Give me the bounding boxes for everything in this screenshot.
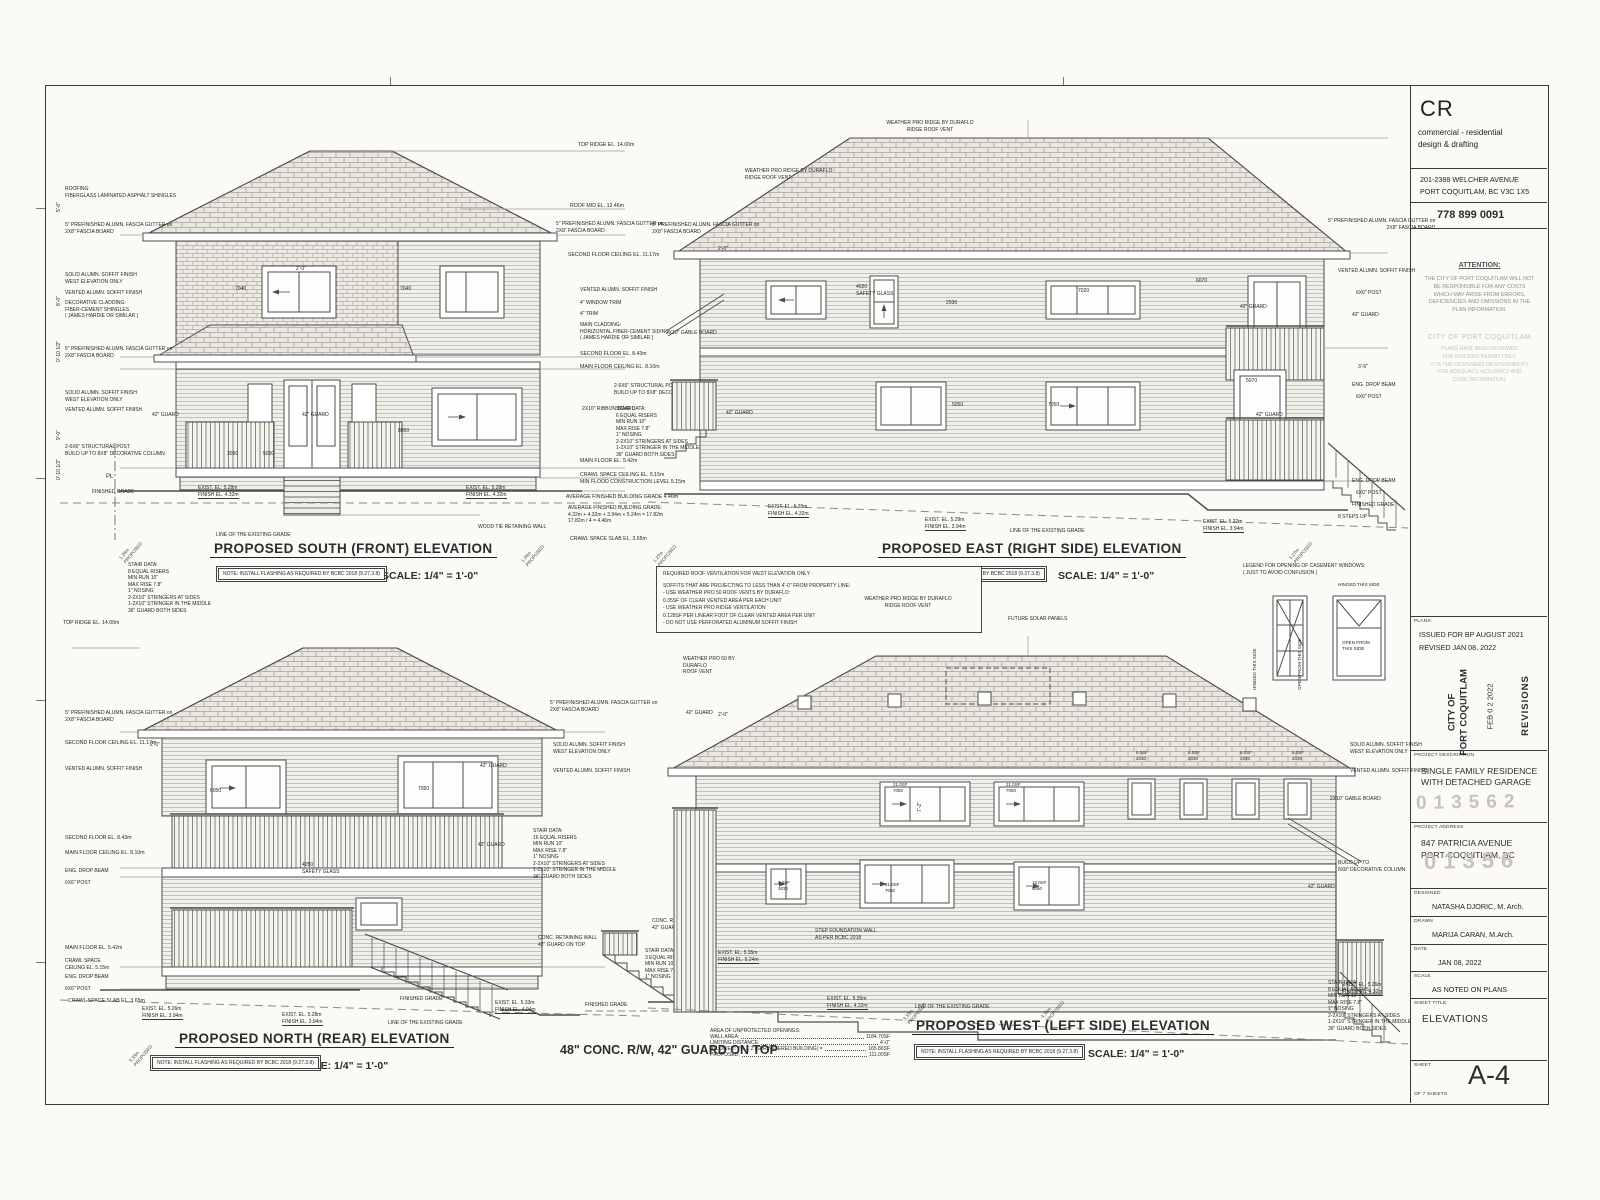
south-second-floor-level: SECOND FLOOR EL. 8.43m <box>580 351 647 358</box>
east-gable-board-note: 2X10" GABLE BOARD <box>666 330 717 337</box>
east-steps-up-label: 8 STEPS UP <box>1338 514 1367 521</box>
east-post-label-3: 6X6" POST <box>1356 490 1382 497</box>
west-flashing-note: NOTE: INSTALL FLASHING AS REQUIRED BY BC… <box>916 1046 1083 1058</box>
south-existing-grade-line-label: LINE OF THE EXISTING GRADE <box>216 532 291 539</box>
east-guard-lower-balcony: 42" GUARD <box>1256 412 1283 419</box>
north-grade-2: EXIST. EL. 5.28m FINISH EL. 3.94m <box>282 1012 323 1026</box>
north-vented-soffit-note: VENTED ALUMN. SOFFIT FINISH <box>65 766 142 773</box>
south-decor-cladding-note: DECORATIVE CLADDING: FIBER-CEMENT SHINGL… <box>65 300 138 320</box>
north-solid-soffit-right: SOLID ALUMN. SOFFIT FINISH WEST ELEVATIO… <box>553 742 625 755</box>
firm-logo: CR <box>1420 96 1454 122</box>
north-grade-1: EXIST. EL. 5.26m FINISH EL. 3.94m <box>142 1006 183 1020</box>
firm-address-1: 201-2388 WELCHER AVENUE <box>1420 175 1519 184</box>
titleblock-divider <box>1410 85 1411 1103</box>
firm-subtitle-1: commercial - residential <box>1418 128 1502 137</box>
north-fascia-note: 5" PREFINISHED ALUMN. FASCIA GUTTER on 2… <box>65 710 172 723</box>
north-window-7050-label: 7050 <box>418 786 429 793</box>
north-top-ridge-level: TOP RIDGE EL. 14.00m <box>63 620 119 627</box>
east-post-label: 6X6" POST <box>1356 290 1382 297</box>
sheet-number-value: A-4 <box>1468 1060 1510 1091</box>
east-elevation-title: PROPOSED EAST (RIGHT SIDE) ELEVATION <box>878 541 1186 558</box>
west-ridge-vent-note: WEATHER PRO RIDGE BY DURAFLO RIDGE ROOF … <box>864 596 951 609</box>
designed-label: DESIGNED <box>1414 891 1441 896</box>
north-post-label-2: 6X6" POST <box>65 986 91 993</box>
west-openings-row-value: 111.00SF <box>869 1052 890 1058</box>
east-existing-grade-line-label: LINE OF THE EXISTING GRADE <box>1010 528 1085 535</box>
east-drop-beam-label-2: ENG. DROP BEAM <box>1352 478 1396 485</box>
north-guard-upper: 42" GUARD <box>480 763 507 770</box>
north-elevation-drawing <box>60 612 640 1042</box>
east-dim-3-6: 3'-6" <box>1358 364 1368 371</box>
south-flashing-note: NOTE: INSTALL FLASHING AS REQUIRED BY BC… <box>218 568 385 580</box>
south-crawl-slab-level: CRAWL SPACE SLAB EL. 3.65m <box>570 536 647 543</box>
east-finished-grade-label: FINISHED GRADE <box>1352 502 1395 509</box>
south-dim-9-0: 9'-0" <box>56 430 63 440</box>
edge-tick <box>36 962 45 963</box>
edge-tick <box>1063 77 1064 85</box>
south-fascia-note: 5" PREFINISHED ALUMN. FASCIA GUTTER on 2… <box>65 222 172 235</box>
north-elevation-title: PROPOSED NORTH (REAR) ELEVATION <box>175 1031 454 1048</box>
south-stair-data: STAIR DATA: 8 EQUAL RISERS MIN RUN 10" M… <box>128 562 211 614</box>
scale-label: SCALE <box>1414 974 1431 979</box>
firm-phone: 778 899 0091 <box>1437 209 1504 221</box>
drawing-sheet: ROOFING: FIBERGLASS LAMINATED ASPHALT SH… <box>0 0 1600 1200</box>
project-address-1: 847 PATRICIA AVENUE <box>1421 838 1512 848</box>
south-post-note: 2-6X6" STRUCTURAL POST BUILD UP TO 8X8" … <box>65 444 165 457</box>
south-scale-label: SCALE: 1/4" = 1'-0" <box>382 570 478 582</box>
north-drop-beam-label: ENG. DROP BEAM <box>65 868 109 875</box>
edge-tick <box>36 700 45 701</box>
south-roofing-note: ROOFING: FIBERGLASS LAMINATED ASPHALT SH… <box>65 186 176 199</box>
west-guard-tower: 42" GUARD <box>686 710 713 717</box>
sheet-number-label: SHEET <box>1414 1063 1431 1068</box>
north-grade-3: EXIST. EL. 5.33m FINISH EL. 4.04m <box>495 1000 536 1014</box>
west-grade-1: EXIST. EL. 5.35m FINISH EL. 5.24m <box>718 950 759 964</box>
west-build8x8-note: BUILD UP TO 8X8" DECORATIVE COLUMN <box>1338 860 1405 873</box>
revision-stamp-revisions: REVISIONS <box>1520 658 1531 753</box>
south-guard-label-2: 42" GUARD <box>302 412 329 419</box>
south-window-trim-note: 4" WINDOW TRIM <box>580 300 621 307</box>
west-window-2030-label-2: 6.0SF 2030 <box>1188 750 1200 762</box>
south-elevation-drawing <box>60 118 640 548</box>
east-drop-beam-label: ENG. DROP BEAM <box>1352 382 1396 389</box>
west-openings-table: AREA OF UNPROTECTED OPENINGS: WALL AREA:… <box>710 1028 890 1058</box>
south-dim-2-0: 2'-0" <box>296 266 306 273</box>
south-vented-soffit-note: VENTED ALUMN. SOFFIT FINISH <box>65 290 142 297</box>
legend-hinged2-label: HINGED THIS SIDE <box>1338 582 1380 588</box>
firm-subtitle-2: design & drafting <box>1418 140 1478 149</box>
north-flashing-note: NOTE: INSTALL FLASHING AS REQUIRED BY BC… <box>152 1057 319 1069</box>
east-grade-b: EXIST. EL. 5.29m FINISH EL. 3.94m <box>925 517 966 531</box>
north-fascia-note-right: 5" PREFINISHED ALUMN. FASCIA GUTTER on 2… <box>550 700 657 713</box>
west-window-7050b-label: 21.0SF 7050 <box>1006 782 1021 794</box>
south-window-5030-label: 5030 <box>263 451 274 458</box>
west-gable-board-note: 2X10" GABLE BOARD <box>1330 796 1381 803</box>
east-fascia-note-right: 5" PREFINISHED ALUMN. FASCIA GUTTER on 2… <box>1328 218 1435 231</box>
sheet-title-value: ELEVATIONS <box>1422 1014 1488 1025</box>
date-label: DATE <box>1414 947 1427 952</box>
east-ridge-vent-note-2: WEATHER PRO RIDGE BY DURAFLO RIDGE ROOF … <box>745 168 832 181</box>
west-elevation-title: PROPOSED WEST (LEFT SIDE) ELEVATION <box>912 1018 1214 1035</box>
south-window-7040b-label: 7040 <box>400 286 411 293</box>
north-vented-soffit-right: VENTED ALUMN. SOFFIT FINISH <box>553 768 630 775</box>
south-grade-right: EXIST. EL. 5.28m FINISH EL. 4.32m <box>466 485 507 499</box>
south-vented-soffit-note-2: VENTED ALUMN. SOFFIT FINISH <box>65 407 142 414</box>
plans-label: PLANS: <box>1414 619 1432 624</box>
edge-tick <box>36 478 45 479</box>
east-window-6070-label: 6070 <box>1196 278 1207 285</box>
south-top-ridge-level: TOP RIDGE EL. 14.00m <box>578 142 634 149</box>
south-solid-soffit-note: SOLID ALUMN. SOFFIT FINISH WEST ELEVATIO… <box>65 272 137 285</box>
south-window-7040-label: 7040 <box>235 286 246 293</box>
east-vented-soffit-right: VENTED ALUMN. SOFFIT FINISH <box>1338 268 1415 275</box>
west-window-2030-label-1: 6.0SF 2030 <box>1136 750 1148 762</box>
east-window-4020-label: 4020 SAFETY GLASS <box>856 284 893 297</box>
designed-value: NATASHA DJORIC, M. Arch. <box>1432 902 1524 911</box>
project-address-label: PROJECT ADDRESS <box>1414 825 1464 830</box>
south-grade-left: EXIST. EL. 5.28m FINISH EL. 4.32m <box>198 485 239 499</box>
south-vented-soffit-note-3: VENTED ALUMN. SOFFIT FINISH <box>580 287 657 294</box>
east-fascia-note-left: 5" PREFINISHED ALUMN. FASCIA GUTTER on 2… <box>652 222 759 235</box>
west-window-5050-label: 15.0SF 5050 <box>1032 880 1047 892</box>
plans-revised: REVISED JAN 08, 2022 <box>1419 643 1496 652</box>
north-main-ceiling-level: MAIN FLOOR CEILING EL. 8.10m <box>65 850 145 857</box>
east-window-7020-label: 7020 <box>1078 288 1089 295</box>
west-dim-2-0: 2'-0" <box>718 712 728 719</box>
edge-tick <box>36 208 45 209</box>
south-wood-tie-label: WOOD TIE RETAINING WALL <box>478 524 546 531</box>
north-main-floor-level: MAIN FLOOR EL. 5.42m <box>65 945 122 952</box>
drawn-value: MARIJA CARAN, M.Arch. <box>1432 930 1514 939</box>
south-finished-grade-label: FINISHED GRADE <box>92 489 135 496</box>
east-scale-label: SCALE: 1/4" = 1'-0" <box>1058 570 1154 582</box>
east-elevation-drawing <box>648 98 1408 553</box>
west-window-3030-label: 9.0SF 3030 <box>778 880 790 892</box>
south-fascia-note-2: 5" PREFINISHED ALUMN. FASCIA GUTTER on 2… <box>65 346 172 359</box>
west-solid-soffit-right: SOLID ALUMN. SOFFIT FINISH WEST ELEVATIO… <box>1350 742 1422 755</box>
west-window-2030-label-3: 6.0SF 2030 <box>1240 750 1252 762</box>
west-step-foundation-note: STEP FOUNDATION WALL AS PER BCBC 2018 <box>815 928 877 941</box>
south-solid-soffit-note-2: SOLID ALUMN. SOFFIT FINISH WEST ELEVATIO… <box>65 390 137 403</box>
drawn-label: DRAWN <box>1414 919 1433 924</box>
attention-heading: ATTENTION: <box>1412 262 1547 269</box>
east-grade-a: EXIST. EL. 5.39m FINISH EL. 4.32m <box>768 504 809 518</box>
west-openings-row-label: PROPOSED: <box>710 1052 740 1058</box>
revision-stamp-date: FEB 0 2 2022 <box>1486 662 1495 752</box>
plans-issued: ISSUED FOR BP AUGUST 2021 <box>1419 630 1524 639</box>
south-dim-8-0: 8'-0" <box>56 296 63 306</box>
west-scale-label: SCALE: 1/4" = 1'-0" <box>1088 1048 1184 1060</box>
roof-ventilation-note-head: REQUIRED ROOF VENTILATION FOR WEST ELEVA… <box>663 571 975 579</box>
north-crawl-ceiling-level: CRAWL SPACE CEILING EL. 5.15m <box>65 958 109 971</box>
south-main-floor-level: MAIN FLOOR EL. 5.42m <box>580 458 637 465</box>
south-dim-10half: 0'-10 1/2" <box>56 341 63 362</box>
north-finished-grade-label: FINISHED GRADE <box>400 996 443 1003</box>
east-dim-2-0: 2'-0" <box>718 246 728 253</box>
south-guard-label: 42" GUARD <box>152 412 179 419</box>
project-description-label: PROJECT DESCRIPTION <box>1414 753 1474 758</box>
east-guard-label-porch: 42" GUARD <box>726 410 753 417</box>
south-trim-note: 4" TRIM <box>580 311 598 318</box>
south-roof-mid-level: ROOF MID EL. 12.46m <box>570 203 624 210</box>
south-elevation-title: PROPOSED SOUTH (FRONT) ELEVATION <box>210 541 497 558</box>
south-window-3030-label: 3030 <box>227 451 238 458</box>
west-dim-7-2: 7'-2" <box>917 802 924 812</box>
firm-address-2: PORT COQUITLAM, BC V3C 1X5 <box>1420 187 1529 196</box>
north-crawl-slab-level: CRAWL SPACE SLAB EL. 3.65m <box>68 998 145 1005</box>
north-existing-grade-line-label: LINE OF THE EXISTING GRADE <box>388 1020 463 1027</box>
city-review-stamp-body: PLANS HAVE BEEN REVIEWED FOR BUILDING PE… <box>1412 346 1547 385</box>
permit-number-stamp-2: 01356 <box>1424 847 1521 875</box>
south-dim-5-0: 5'-0" <box>56 202 63 212</box>
south-second-ceiling-level: SECOND FLOOR CEILING EL. 11.17m <box>568 252 659 259</box>
north-dim-2-0: 2'-0" <box>150 742 160 749</box>
north-window-6050-label: 6050 <box>210 788 221 795</box>
west-grade-3: EXIST. EL. 5.26m FINISH EL. 4.32m <box>1342 982 1383 996</box>
north-second-ceiling-level: SECOND FLOOR CEILING EL. 11.17m <box>65 740 156 747</box>
scale-value: AS NOTED ON PLANS <box>1432 985 1507 994</box>
south-window-8050-label: 8050 <box>398 428 409 435</box>
east-guard-right: 42" GUARD <box>1352 312 1379 319</box>
east-post-label-2: 6X6" POST <box>1356 394 1382 401</box>
sheet-count-label: OF 7 SHEETS <box>1414 1092 1447 1097</box>
east-ridge-vent-note: WEATHER PRO RIDGE BY DURAFLO RIDGE ROOF … <box>886 120 973 133</box>
west-window-7050c-label: 21.0SF 7050 <box>885 882 900 894</box>
south-dim-10half-2: 0'-10 1/2" <box>56 459 63 480</box>
north-drop-beam-label-2: ENG. DROP BEAM <box>65 974 109 981</box>
edge-tick <box>390 77 391 85</box>
north-window-4050-label: 4050 SAFETY GLASS <box>302 862 339 875</box>
attention-body: THE CITY OF PORT COQUITLAM WILL NOT BE R… <box>1412 276 1547 315</box>
east-window-5070-label: 5070 <box>1246 378 1257 385</box>
sheet-title-label: SHEET TITLE <box>1414 1001 1446 1006</box>
west-grade-2: EXIST. EL. 5.35m FINISH EL. 4.32m <box>827 996 868 1010</box>
city-review-stamp-head: CITY OF PORT COQUITLAM <box>1412 334 1547 341</box>
east-window-5050-label: 5050 <box>952 402 963 409</box>
date-value: JAN 08, 2022 <box>1438 958 1482 967</box>
west-guard-porch: 42" GUARD <box>1308 884 1335 891</box>
east-window-2036-label: 2036 <box>946 300 957 307</box>
north-stair-data-16: STAIR DATA: 16 EQUAL RISERS MIN RUN 10" … <box>533 828 616 880</box>
permit-number-stamp: 013562 <box>1416 791 1522 815</box>
north-post-label: 6X6" POST <box>65 880 91 887</box>
west-elevation-drawing <box>648 612 1408 1057</box>
north-guard-lower: 42" GUARD <box>478 842 505 849</box>
project-description-value: SINGLE FAMILY RESIDENCE WITH DETACHED GA… <box>1421 766 1537 788</box>
north-second-floor-level: SECOND FLOOR EL. 8.43m <box>65 835 132 842</box>
east-guard-upper-balcony: 42" GUARD <box>1240 304 1267 311</box>
west-window-2030-label-4: 6.0SF 2030 <box>1292 750 1304 762</box>
west-vent50-note: WEATHER PRO 50 BY DURAFLO ROOF VENT <box>683 656 735 676</box>
west-window-7050a-label: 21.0SF 7050 <box>893 782 908 794</box>
west-solar-note: FUTURE SOLAR PANELS <box>1008 616 1067 623</box>
south-property-line-label: PL <box>106 474 113 482</box>
legend-heading: LEGEND FOR OPENING OF CASEMENT WINDOWS: … <box>1243 563 1365 576</box>
west-vented-soffit-right: VENTED ALUMN. SOFFIT FINISH <box>1350 768 1427 775</box>
east-window-7050-label: 7050 <box>1048 402 1059 409</box>
east-grade-c: EXIST. EL. 5.27m FINISH EL. 3.94m <box>1203 519 1244 533</box>
